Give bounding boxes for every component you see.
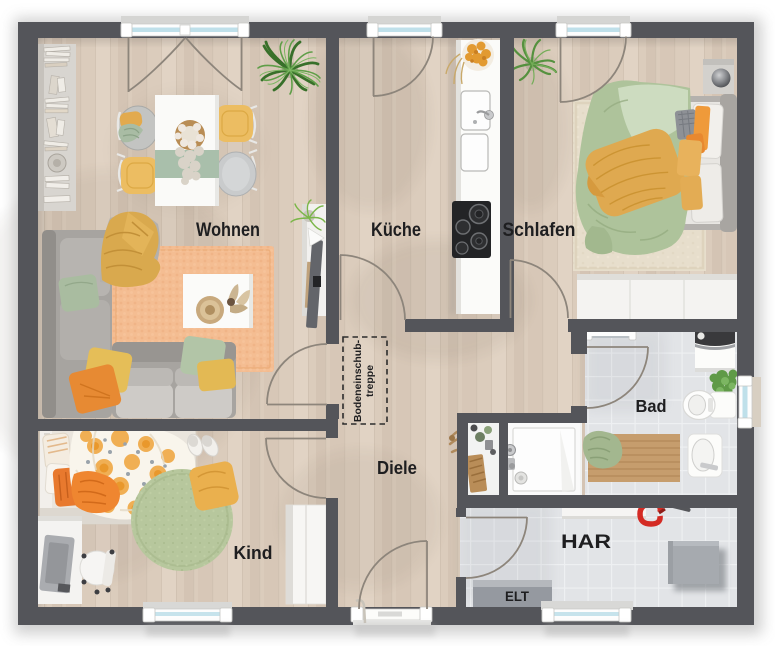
- svg-text:Küche: Küche: [371, 220, 421, 241]
- svg-text:Wohnen: Wohnen: [196, 220, 260, 241]
- svg-text:Bad: Bad: [636, 396, 667, 416]
- svg-text:ELT: ELT: [505, 589, 530, 604]
- svg-text:Diele: Diele: [377, 458, 417, 478]
- svg-text:HAR: HAR: [561, 532, 611, 553]
- svg-text:Schlafen: Schlafen: [503, 220, 576, 241]
- svg-text:Kind: Kind: [234, 543, 273, 563]
